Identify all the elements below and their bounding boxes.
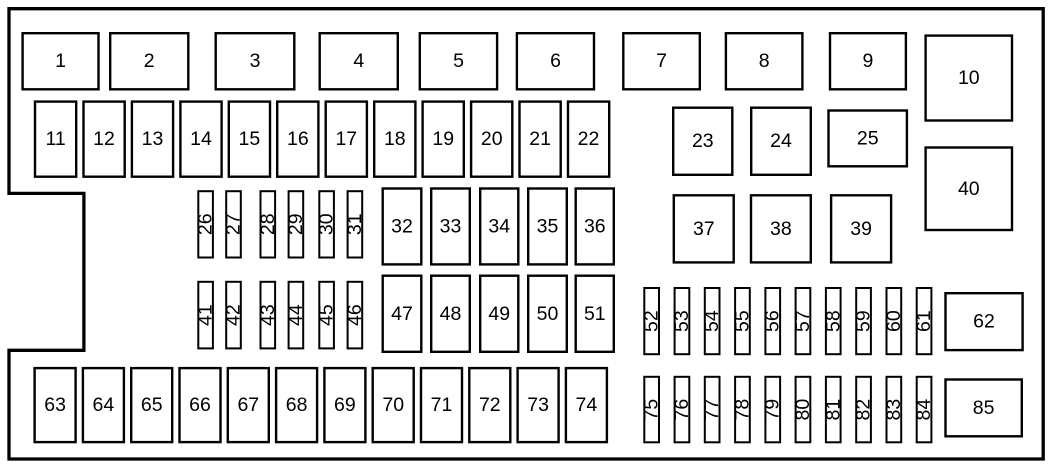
svg-text:57: 57 bbox=[792, 310, 814, 332]
svg-text:76: 76 bbox=[671, 399, 693, 421]
svg-text:10: 10 bbox=[958, 67, 980, 89]
svg-text:59: 59 bbox=[853, 310, 875, 332]
svg-text:58: 58 bbox=[822, 310, 844, 332]
svg-text:17: 17 bbox=[335, 128, 357, 150]
svg-text:66: 66 bbox=[189, 394, 211, 416]
svg-text:80: 80 bbox=[792, 399, 814, 421]
svg-text:13: 13 bbox=[142, 128, 164, 150]
svg-text:38: 38 bbox=[770, 218, 792, 240]
svg-text:78: 78 bbox=[732, 399, 754, 421]
svg-text:19: 19 bbox=[432, 128, 454, 150]
svg-text:84: 84 bbox=[913, 399, 935, 421]
svg-text:67: 67 bbox=[237, 394, 259, 416]
svg-text:69: 69 bbox=[334, 394, 356, 416]
svg-text:54: 54 bbox=[701, 310, 723, 332]
svg-text:22: 22 bbox=[578, 128, 600, 150]
svg-text:37: 37 bbox=[693, 218, 715, 240]
svg-text:34: 34 bbox=[488, 216, 510, 238]
svg-text:1: 1 bbox=[55, 50, 66, 72]
svg-text:55: 55 bbox=[732, 310, 754, 332]
svg-text:85: 85 bbox=[973, 397, 995, 419]
svg-text:11: 11 bbox=[45, 128, 65, 150]
svg-text:75: 75 bbox=[641, 399, 663, 421]
svg-text:50: 50 bbox=[537, 303, 559, 325]
svg-text:62: 62 bbox=[973, 311, 995, 333]
svg-text:46: 46 bbox=[344, 304, 366, 326]
svg-text:77: 77 bbox=[701, 399, 723, 421]
svg-text:21: 21 bbox=[529, 128, 551, 150]
svg-text:53: 53 bbox=[671, 310, 693, 332]
svg-text:40: 40 bbox=[958, 178, 980, 200]
svg-text:68: 68 bbox=[286, 394, 308, 416]
svg-text:20: 20 bbox=[481, 128, 503, 150]
svg-text:29: 29 bbox=[285, 213, 307, 235]
svg-text:79: 79 bbox=[762, 399, 784, 421]
svg-text:36: 36 bbox=[584, 216, 606, 238]
svg-text:61: 61 bbox=[913, 310, 935, 332]
svg-text:56: 56 bbox=[762, 310, 784, 332]
svg-text:27: 27 bbox=[223, 213, 245, 235]
svg-text:30: 30 bbox=[316, 213, 338, 235]
svg-text:49: 49 bbox=[488, 303, 510, 325]
svg-text:5: 5 bbox=[453, 50, 464, 72]
svg-text:6: 6 bbox=[550, 50, 561, 72]
svg-text:44: 44 bbox=[285, 304, 307, 326]
svg-text:47: 47 bbox=[391, 303, 413, 325]
svg-text:28: 28 bbox=[257, 213, 279, 235]
svg-text:31: 31 bbox=[344, 213, 366, 235]
svg-text:2: 2 bbox=[144, 50, 155, 72]
svg-text:51: 51 bbox=[584, 303, 606, 325]
svg-text:71: 71 bbox=[431, 394, 453, 416]
svg-text:63: 63 bbox=[44, 394, 66, 416]
svg-text:52: 52 bbox=[641, 310, 663, 332]
svg-text:3: 3 bbox=[250, 50, 261, 72]
svg-text:81: 81 bbox=[822, 399, 844, 421]
svg-text:83: 83 bbox=[883, 399, 905, 421]
svg-text:72: 72 bbox=[479, 394, 501, 416]
svg-text:82: 82 bbox=[853, 399, 875, 421]
svg-text:42: 42 bbox=[223, 304, 245, 326]
svg-text:35: 35 bbox=[537, 216, 559, 238]
svg-text:26: 26 bbox=[195, 213, 217, 235]
svg-text:16: 16 bbox=[287, 128, 309, 150]
svg-text:73: 73 bbox=[527, 394, 549, 416]
svg-text:33: 33 bbox=[440, 216, 462, 238]
svg-text:9: 9 bbox=[862, 50, 873, 72]
svg-text:15: 15 bbox=[239, 128, 261, 150]
svg-text:41: 41 bbox=[195, 304, 217, 326]
svg-text:70: 70 bbox=[382, 394, 404, 416]
svg-text:32: 32 bbox=[391, 216, 413, 238]
svg-text:45: 45 bbox=[316, 304, 338, 326]
svg-text:8: 8 bbox=[759, 50, 770, 72]
svg-text:25: 25 bbox=[857, 127, 879, 149]
svg-text:7: 7 bbox=[656, 50, 667, 72]
svg-text:74: 74 bbox=[576, 394, 598, 416]
svg-text:24: 24 bbox=[770, 130, 792, 152]
svg-text:64: 64 bbox=[93, 394, 115, 416]
svg-text:14: 14 bbox=[190, 128, 212, 150]
svg-text:48: 48 bbox=[440, 303, 462, 325]
svg-text:23: 23 bbox=[692, 130, 714, 152]
svg-text:39: 39 bbox=[850, 218, 872, 240]
svg-text:65: 65 bbox=[141, 394, 163, 416]
svg-text:18: 18 bbox=[384, 128, 406, 150]
svg-text:60: 60 bbox=[883, 310, 905, 332]
svg-text:4: 4 bbox=[353, 50, 364, 72]
svg-text:12: 12 bbox=[93, 128, 115, 150]
svg-text:43: 43 bbox=[257, 304, 279, 326]
